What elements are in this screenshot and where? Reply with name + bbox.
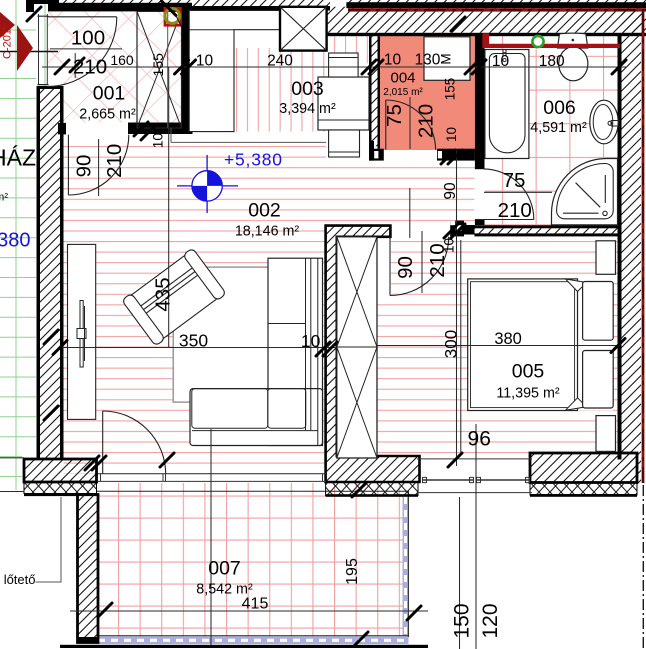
svg-text:90: 90	[442, 182, 459, 200]
svg-text:001: 001	[93, 83, 126, 105]
svg-text:2,015 m²: 2,015 m²	[383, 87, 423, 98]
svg-text:3,394 m²: 3,394 m²	[279, 101, 336, 117]
svg-text:210: 210	[73, 56, 107, 79]
svg-text:HÁZ: HÁZ	[0, 145, 36, 171]
svg-text:007: 007	[208, 558, 241, 580]
svg-text:160: 160	[110, 52, 134, 68]
svg-text:004: 004	[390, 70, 415, 87]
svg-text:435: 435	[152, 277, 175, 311]
svg-text:006: 006	[543, 97, 576, 119]
svg-text:4,591 m²: 4,591 m²	[530, 120, 587, 136]
svg-text:100: 100	[71, 27, 105, 50]
svg-text:210: 210	[103, 144, 126, 178]
svg-text:150: 150	[451, 603, 474, 638]
svg-text:155: 155	[150, 53, 166, 77]
svg-text:18,146 m²: 18,146 m²	[235, 224, 300, 240]
svg-text:2,665 m²: 2,665 m²	[79, 107, 136, 123]
svg-text:M: M	[439, 53, 454, 64]
svg-text:120: 120	[479, 603, 502, 638]
svg-text:10: 10	[442, 238, 457, 253]
svg-text:75: 75	[383, 104, 406, 127]
svg-text:350: 350	[179, 331, 208, 351]
svg-text:C-201: C-201	[2, 29, 14, 59]
svg-text:10: 10	[196, 53, 214, 70]
svg-text:003: 003	[291, 78, 324, 100]
svg-text:10: 10	[301, 331, 321, 351]
svg-text:90: 90	[394, 256, 417, 279]
svg-text:300: 300	[442, 330, 461, 358]
svg-text:m²: m²	[0, 192, 8, 204]
svg-text:96: 96	[468, 428, 491, 451]
svg-text:002: 002	[248, 200, 281, 222]
svg-text:195: 195	[344, 558, 361, 585]
svg-text:210: 210	[415, 104, 438, 138]
svg-text:75: 75	[503, 169, 526, 192]
svg-text:380: 380	[494, 330, 522, 348]
svg-text:+5,380: +5,380	[224, 150, 282, 170]
svg-text:90: 90	[73, 155, 96, 178]
svg-text:11,395 m²: 11,395 m²	[496, 386, 560, 402]
svg-text:180: 180	[539, 53, 565, 70]
svg-text:210: 210	[498, 199, 532, 222]
svg-text:lőtető: lőtető	[4, 572, 36, 587]
svg-text:10: 10	[150, 133, 166, 149]
svg-text:415: 415	[242, 595, 269, 612]
svg-text:005: 005	[512, 361, 545, 383]
svg-text:155: 155	[443, 78, 458, 101]
svg-text:130: 130	[415, 52, 441, 69]
svg-text:10: 10	[444, 127, 459, 142]
svg-text:10: 10	[492, 53, 510, 70]
svg-text:380: 380	[0, 230, 31, 252]
svg-text:240: 240	[267, 53, 293, 70]
svg-text:10: 10	[384, 52, 402, 69]
